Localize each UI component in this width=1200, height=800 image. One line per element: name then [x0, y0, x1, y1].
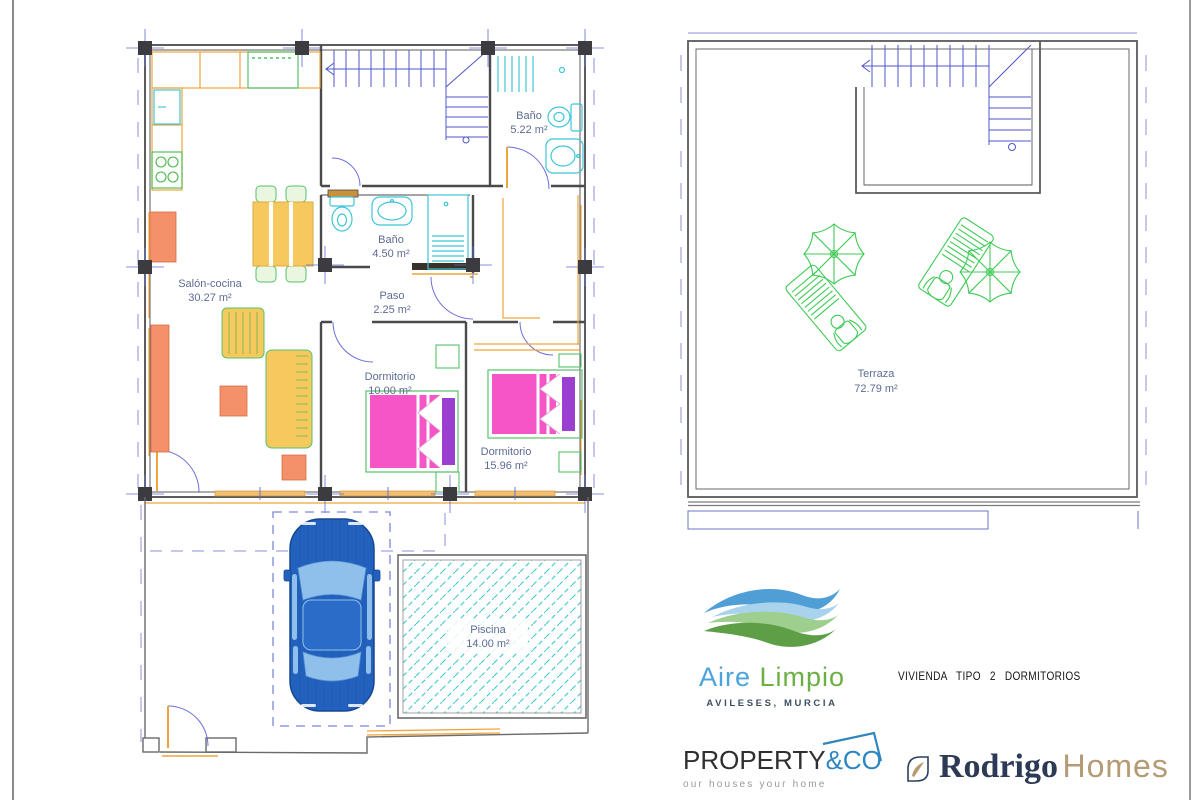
- threshold: [367, 729, 500, 731]
- aire-limpio-location: AVILESES, MURCIA: [692, 698, 852, 709]
- nightstand: [559, 354, 581, 367]
- mirror: [373, 570, 380, 581]
- sheet-right-border: [1189, 0, 1191, 800]
- property-word: PROPERTY: [683, 745, 826, 775]
- car-roof: [303, 600, 361, 650]
- staircase: [326, 50, 488, 143]
- plan-title: VIVIENDA TIPO 2 DORMITORIOS: [898, 669, 1081, 683]
- sun-lounger: [917, 216, 995, 307]
- chair: [286, 266, 306, 282]
- windshield: [298, 561, 366, 600]
- nightstand: [559, 452, 581, 472]
- property-co-logo: PROPERTY&CO our houses your home: [683, 745, 882, 790]
- chair: [256, 266, 276, 282]
- property-roof-icon: [821, 730, 891, 764]
- sheet-left-border: [12, 0, 14, 800]
- side-window: [367, 574, 372, 640]
- toilet: [332, 207, 352, 231]
- shower: [428, 195, 468, 269]
- terrace-bottom-lines: [688, 502, 1140, 529]
- label-dorm-large-area: 15.96 m²: [484, 460, 528, 472]
- dining-set: [253, 186, 313, 282]
- label-dorm-small-name: Dormitorio: [365, 371, 416, 383]
- toilet: [548, 107, 570, 127]
- label-paso-name: Paso: [379, 290, 404, 302]
- chair: [256, 186, 276, 202]
- roof-terrace-plan: [681, 33, 1146, 529]
- label-dorm-large-name: Dormitorio: [481, 446, 532, 458]
- gate-arc: [168, 706, 208, 746]
- label-terraza-area: 72.79 m²: [854, 383, 898, 395]
- rodrigo-word: Rodrigo: [939, 748, 1058, 785]
- yard: [143, 497, 588, 756]
- toilet-tank: [330, 197, 354, 206]
- dining-table: [253, 202, 313, 266]
- kitchen-sink: [154, 90, 180, 124]
- aire-word: Aire: [699, 662, 751, 692]
- label-dorm-small-area: 10.00 m²: [368, 385, 412, 397]
- label-salon-name: Salón-cocina: [178, 278, 242, 290]
- bed-mattress: [492, 374, 556, 434]
- label-bano-top-area: 5.22 m²: [510, 124, 548, 136]
- nightstand: [436, 345, 459, 368]
- parasol: [960, 242, 1020, 302]
- bath-vent-window: [328, 190, 358, 197]
- limpio-word: Limpio: [759, 662, 845, 692]
- rodrigo-homes-logo: Rodrigo Homes: [905, 748, 1169, 786]
- roof-dashed-lines: [681, 55, 1146, 485]
- kitchen-hob: [152, 152, 182, 188]
- pillow: [562, 377, 575, 431]
- mirror: [284, 570, 291, 581]
- side-window: [292, 574, 297, 640]
- homes-word: Homes: [1062, 748, 1168, 784]
- label-terraza-name: Terraza: [858, 368, 896, 380]
- aire-limpio-logo: Aire Limpio AVILESES, MURCIA: [692, 583, 852, 709]
- label-salon-area: 30.27 m²: [188, 292, 232, 304]
- aire-limpio-name: Aire Limpio: [692, 662, 852, 693]
- sun-lounger: [784, 264, 867, 353]
- label-piscina-area: 14.00 m²: [466, 638, 510, 650]
- sofa: [266, 350, 312, 448]
- aire-limpio-waves-icon: [702, 583, 842, 655]
- pool: [398, 555, 586, 718]
- kitchen: [152, 52, 320, 190]
- label-bano-mid-name: Baño: [378, 234, 404, 246]
- pillars: [126, 29, 604, 513]
- label-bano-mid-area: 4.50 m²: [372, 248, 410, 260]
- label-bano-top-name: Baño: [516, 110, 542, 122]
- kitchen-counter: [152, 52, 320, 190]
- rodrigo-leaf-icon: [905, 754, 931, 784]
- bedroom-small: [366, 345, 459, 492]
- car: [284, 519, 380, 711]
- chair: [286, 186, 306, 202]
- label-piscina-name: Piscina: [470, 624, 506, 636]
- property-co-tagline: our houses your home: [683, 779, 882, 790]
- door-arcs: [157, 147, 553, 492]
- label-paso-area: 2.25 m²: [373, 304, 411, 316]
- pillow: [442, 398, 455, 465]
- terrace-walls: [688, 41, 1137, 497]
- terrace-staircase: [862, 45, 1031, 151]
- plan-sheet: Salón-cocina 30.27 m² Baño 5.22 m² Baño …: [0, 0, 1200, 800]
- bottom-windows: [145, 487, 585, 503]
